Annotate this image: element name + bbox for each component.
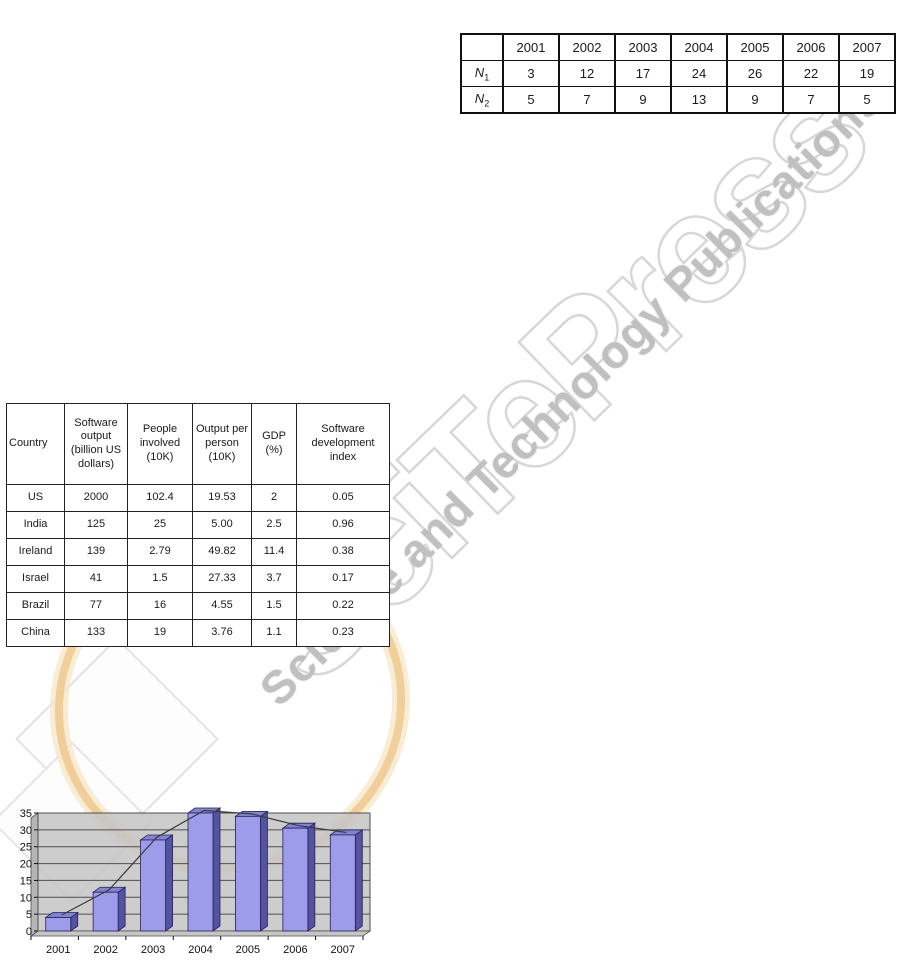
value-cell: 102.4 [128,485,193,512]
y-axis-label: 30 [20,825,32,837]
x-axis-label: 2003 [141,944,165,956]
chart-bar-side [213,808,220,931]
x-axis-label: 2005 [236,944,260,956]
chart-bar [235,816,260,931]
years-header-row: 2001200220032004200520062007 [461,34,895,61]
chart-canvas: 0510152025303520012002200320042005200620… [8,803,378,961]
series-row: N13121724262219 [461,61,895,87]
count-cell: 5 [503,87,559,114]
value-cell: 11.4 [252,539,297,566]
year-header-cell: 2003 [615,34,671,61]
year-header-cell: 2002 [559,34,615,61]
value-cell: 3.76 [193,620,252,647]
series-row: N257913975 [461,87,895,114]
value-cell: 0.05 [297,485,390,512]
chart-bar-side [355,830,362,931]
column-header-cell: Software development index [297,404,390,485]
chart-bar [141,840,166,931]
value-cell: 133 [65,620,128,647]
count-cell: 19 [839,61,895,87]
y-axis-label: 10 [20,892,32,904]
x-axis-label: 2001 [46,944,70,956]
chart-side-wall [31,813,38,936]
count-cell: 22 [783,61,839,87]
x-axis-label: 2006 [283,944,307,956]
count-cell: 9 [727,87,783,114]
year-header-cell: 2004 [671,34,727,61]
value-cell: 1.5 [128,566,193,593]
count-cell: 5 [839,87,895,114]
chart-bar [93,892,118,931]
value-cell: 19.53 [193,485,252,512]
country-data-row: India125255.002.50.96 [7,512,390,539]
chart-bar-side [260,811,267,931]
value-cell: 0.38 [297,539,390,566]
country-data-row: China133193.761.10.23 [7,620,390,647]
chart-floor [31,931,370,936]
column-header-cell: Output per person (10K) [193,404,252,485]
year-header-cell: 2007 [839,34,895,61]
chart-bar [188,813,213,931]
value-cell: 77 [65,593,128,620]
chart-bar-side [308,823,315,931]
x-axis-label: 2002 [93,944,117,956]
value-cell: 2.79 [128,539,193,566]
year-header-cell: 2005 [727,34,783,61]
value-cell: 49.82 [193,539,252,566]
chart-bar-side [118,887,125,931]
count-cell: 24 [671,61,727,87]
column-header-cell: GDP (%) [252,404,297,485]
country-header-row: CountrySoftware output (billion US dolla… [7,404,390,485]
value-cell: 25 [128,512,193,539]
country-data-row: Israel411.527.333.70.17 [7,566,390,593]
chart-bar-side [166,835,173,931]
value-cell: 0.22 [297,593,390,620]
count-cell: 13 [671,87,727,114]
chart-bar [283,828,308,931]
count-cell: 26 [727,61,783,87]
column-header-cell: Software output (billion US dollars) [65,404,128,485]
series-label-cell: N1 [461,61,503,87]
value-cell: 4.55 [193,593,252,620]
count-cell: 17 [615,61,671,87]
count-cell: 7 [783,87,839,114]
country-name-cell: Israel [7,566,65,593]
count-cell: 9 [615,87,671,114]
chart-bar [330,835,355,931]
value-cell: 2000 [65,485,128,512]
value-cell: 2.5 [252,512,297,539]
value-cell: 0.96 [297,512,390,539]
series-label-cell: N2 [461,87,503,114]
y-axis-label: 25 [20,842,32,854]
value-cell: 139 [65,539,128,566]
value-cell: 0.23 [297,620,390,647]
country-name-cell: India [7,512,65,539]
country-name-cell: Ireland [7,539,65,566]
software-trend-bar-chart: 0510152025303520012002200320042005200620… [8,803,378,961]
y-axis-label: 15 [20,875,32,887]
count-cell: 12 [559,61,615,87]
corner-cell [461,34,503,61]
year-header-cell: 2001 [503,34,559,61]
value-cell: 125 [65,512,128,539]
value-cell: 41 [65,566,128,593]
country-name-cell: China [7,620,65,647]
value-cell: 19 [128,620,193,647]
value-cell: 1.1 [252,620,297,647]
value-cell: 16 [128,593,193,620]
column-header-cell: Country [7,404,65,485]
chart-bar [46,918,71,931]
value-cell: 2 [252,485,297,512]
value-cell: 1.5 [252,593,297,620]
x-axis-label: 2004 [188,944,212,956]
yearly-counts-table: 2001200220032004200520062007N13121724262… [460,33,896,114]
count-cell: 7 [559,87,615,114]
country-name-cell: US [7,485,65,512]
country-software-table: CountrySoftware output (billion US dolla… [6,403,390,647]
country-data-row: Ireland1392.7949.8211.40.38 [7,539,390,566]
value-cell: 0.17 [297,566,390,593]
value-cell: 3.7 [252,566,297,593]
country-data-row: Brazil77164.551.50.22 [7,593,390,620]
year-header-cell: 2006 [783,34,839,61]
y-axis-label: 20 [20,859,32,871]
value-cell: 27.33 [193,566,252,593]
country-data-row: US2000102.419.5320.05 [7,485,390,512]
count-cell: 3 [503,61,559,87]
y-axis-label: 5 [26,909,32,921]
x-axis-label: 2007 [331,944,355,956]
country-name-cell: Brazil [7,593,65,620]
y-axis-label: 35 [20,808,32,820]
column-header-cell: People involved (10K) [128,404,193,485]
value-cell: 5.00 [193,512,252,539]
